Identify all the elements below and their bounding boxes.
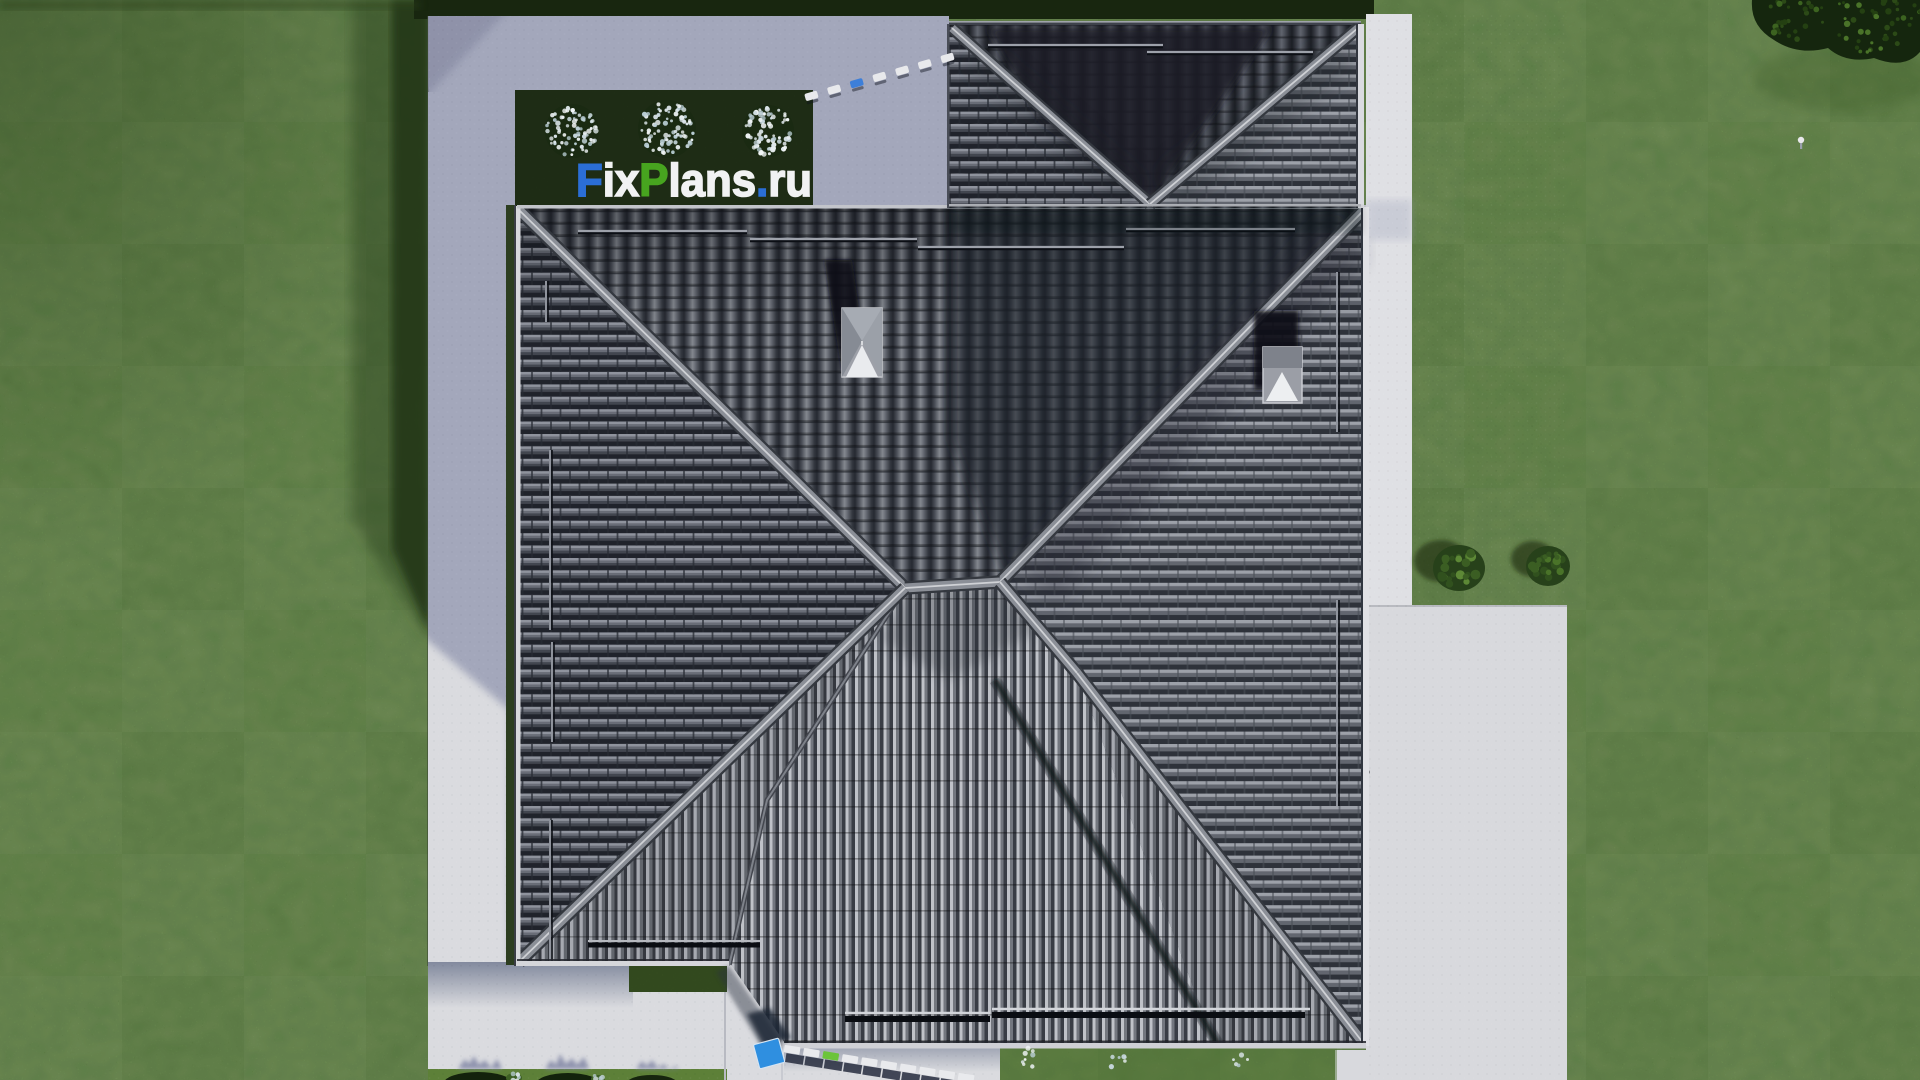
svg-text:FixPlans.ru: FixPlans.ru: [576, 154, 812, 206]
